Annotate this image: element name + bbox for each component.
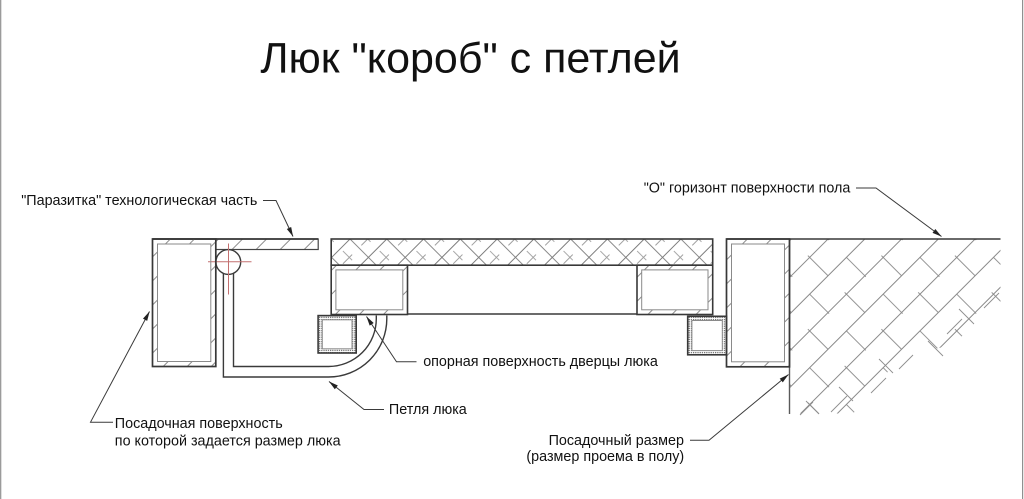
svg-text:по которой задается размер люк: по которой задается размер люка	[115, 433, 341, 449]
svg-text:опорная поверхность дверцы люк: опорная поверхность дверцы люка	[423, 354, 658, 370]
svg-text:Петля люка: Петля люка	[389, 402, 467, 418]
svg-text:(размер проема в полу): (размер проема в полу)	[526, 449, 684, 465]
svg-text:Посадочная поверхность: Посадочная поверхность	[115, 416, 283, 432]
svg-text:Люк "короб" с петлей: Люк "короб" с петлей	[260, 35, 680, 83]
svg-text:"О" горизонт поверхности пола: "О" горизонт поверхности пола	[644, 181, 851, 197]
svg-text:Посадочный размер: Посадочный размер	[549, 433, 684, 449]
svg-text:"Паразитка" технологическая ча: "Паразитка" технологическая часть	[21, 193, 257, 209]
